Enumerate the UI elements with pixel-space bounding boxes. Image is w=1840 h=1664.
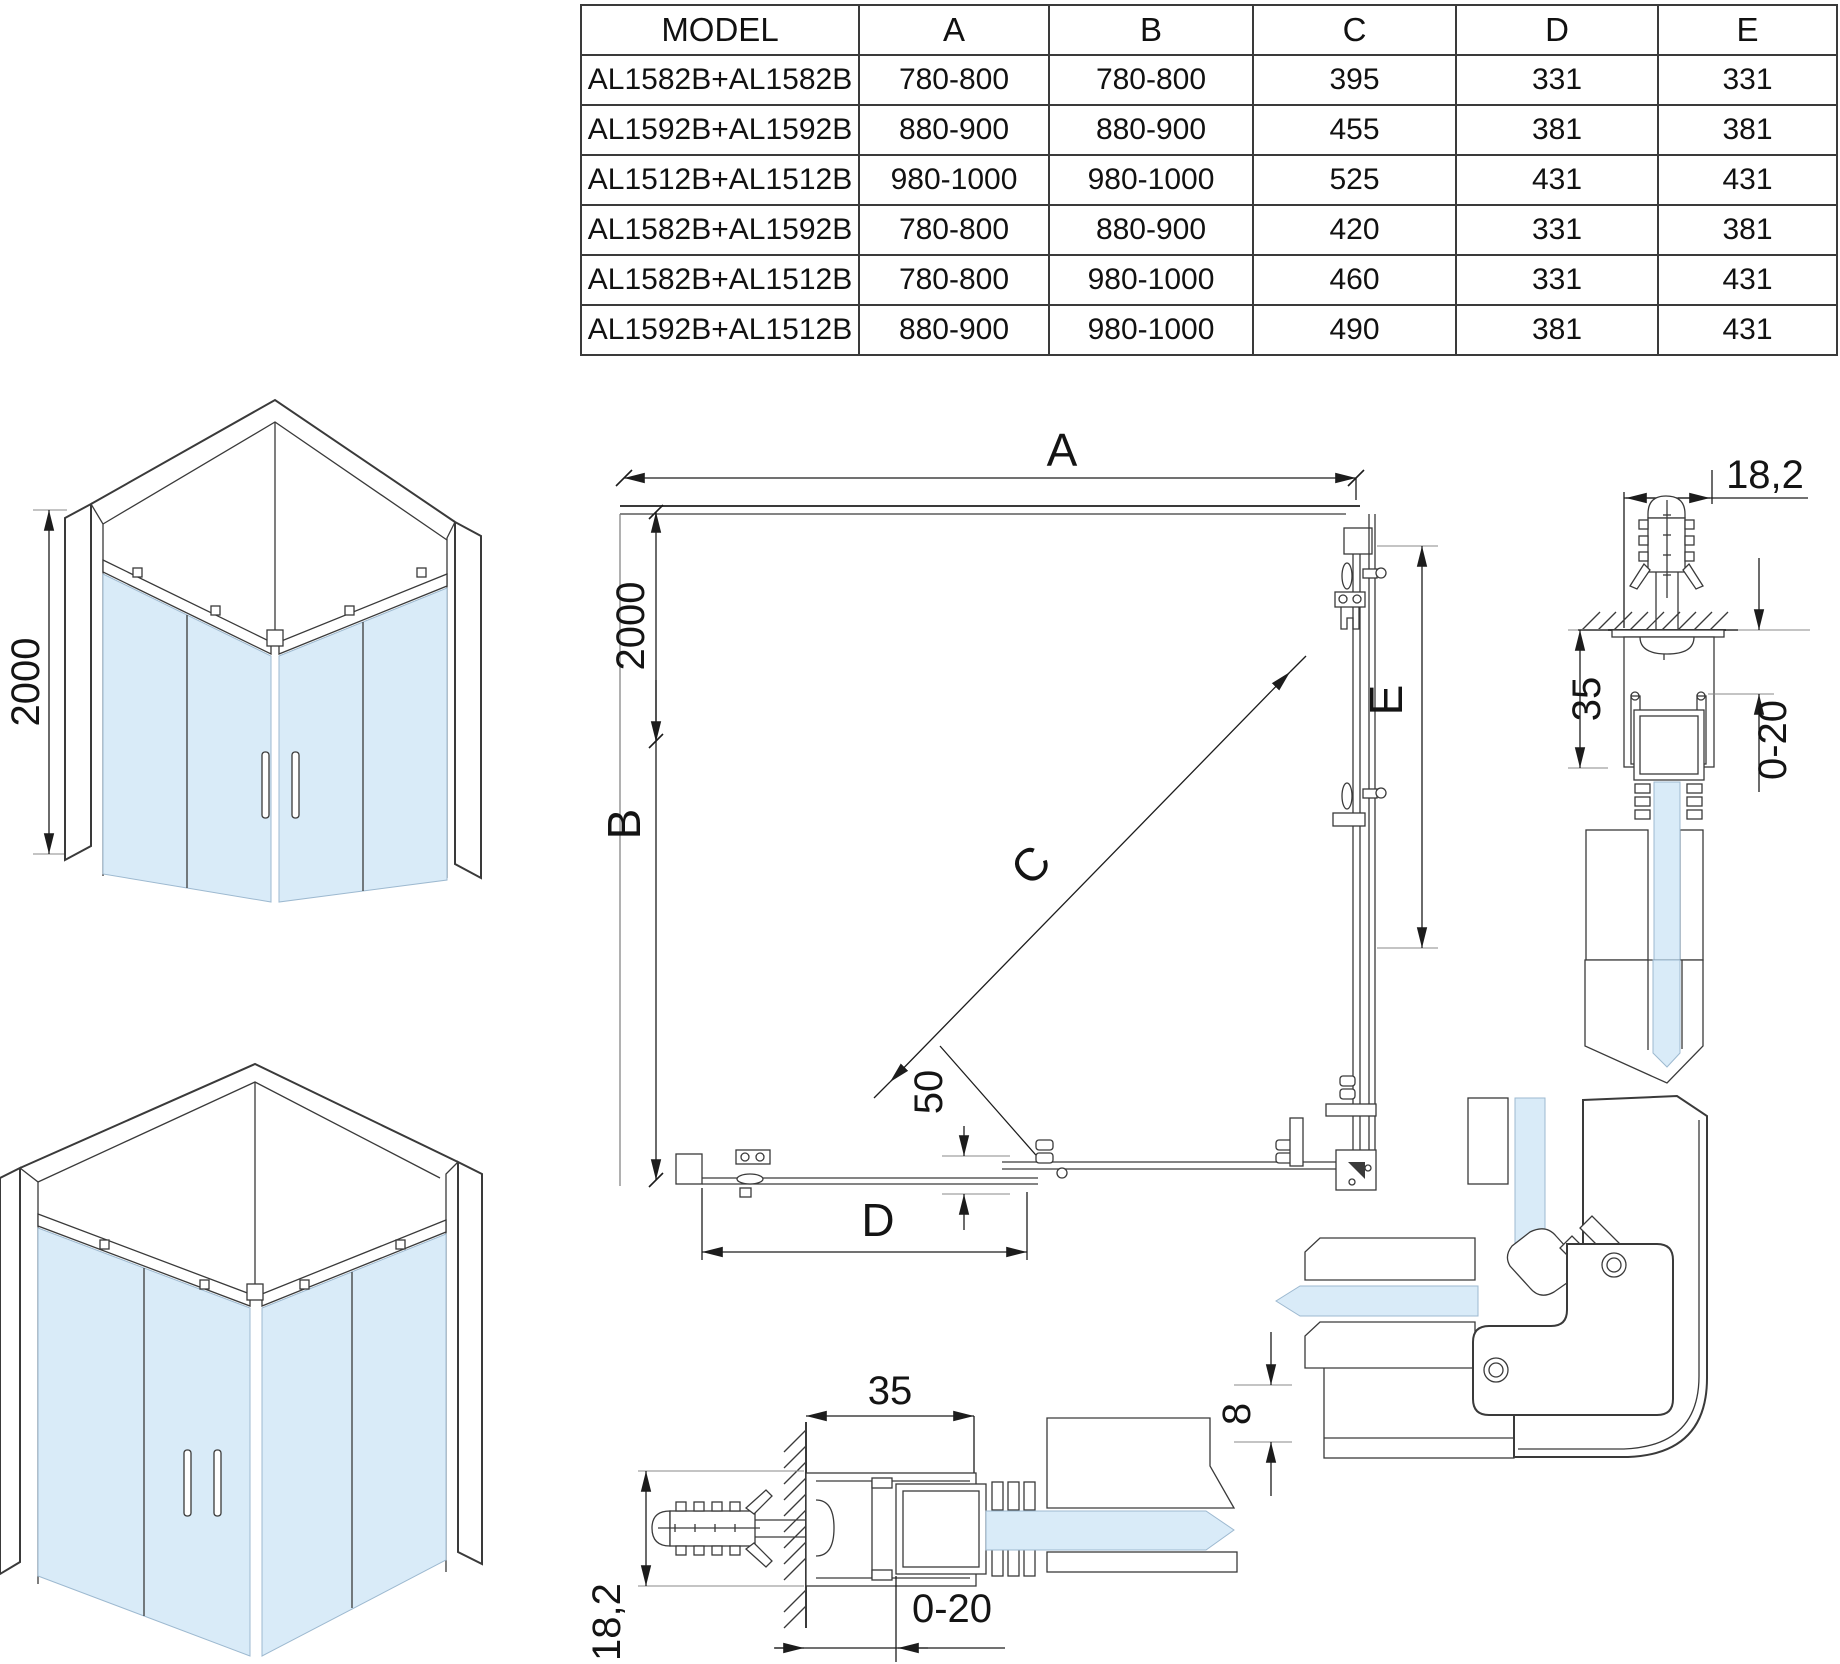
col-header-e: E [1658,5,1837,55]
dim-c-label: C [1000,835,1060,895]
col-header-model: MODEL [581,5,859,55]
dim-35-label: 35 [1565,677,1609,722]
inner-door-glass [1468,1098,1580,1295]
door-panel-edge [1586,830,1648,960]
dim-35: 35 [806,1369,974,1478]
dim-0-20-label: 0-20 [1751,700,1795,780]
cell-model: AL1582B+AL1512B [581,255,859,305]
table-header-row: MODEL A B C D E [581,5,1837,55]
col-header-c: C [1253,5,1456,55]
glass-section [1654,782,1680,960]
plug-width-label: 18,2 [585,1583,629,1661]
dim-0-20-label: 0-20 [912,1587,992,1631]
dim-50: 50 [907,1070,1010,1230]
table-row: AL1592B+AL1512B 880-900 980-1000 490 381… [581,305,1837,355]
dim-a-label: A [1047,424,1078,476]
wall-hatch [1578,612,1738,630]
dim-e-label: E [1360,685,1412,716]
dim-35-label: 35 [868,1369,913,1413]
cell-model: AL1582B+AL1592B [581,205,859,255]
dim-b-2000: 2000 B [598,505,663,1187]
dim-a: A [616,424,1364,500]
dim-d: D [702,1188,1027,1260]
dim-d-label: D [861,1194,894,1246]
wall-top [620,506,1360,514]
corner-connector-bracket [1473,1244,1673,1415]
col-header-a: A [859,5,1049,55]
table-row: AL1582B+AL1512B 780-800 980-1000 460 331… [581,255,1837,305]
cell-model: AL1582B+AL1582B [581,55,859,105]
dim-plug-width: 18,2 [585,1471,804,1661]
vertical-glass-from-top [1585,960,1703,1083]
col-header-b: B [1049,5,1253,55]
dim-35: 35 [1565,630,1609,768]
corner-cap [247,1284,263,1300]
dim-0-20: 0-20 [1708,558,1810,792]
corner-seal-detail: 8 [1230,950,1840,1664]
isometric-view-square-enclosure: 2000 [15,378,485,908]
dim-e: E [1360,546,1438,948]
technical-datasheet: MODEL A B C D E AL1582B+AL1582B 780-800 … [0,0,1840,1664]
dim-b-label: B [598,809,650,840]
cell-model: AL1512B+AL1512B [581,155,859,205]
height-label: 2000 [609,582,653,671]
wall-hatch [784,1422,806,1628]
height-label: 2000 [4,638,48,727]
table-row: AL1512B+AL1512B 980-1000 980-1000 525 43… [581,155,1837,205]
section-detail-top-profile: 18,2 [1560,400,1840,960]
corner-cap [267,630,283,646]
dim-50-label: 50 [907,1070,951,1115]
isometric-view-rectangular-enclosure [0,912,500,1664]
table-row: AL1592B+AL1592B 880-900 880-900 455 381 … [581,105,1837,155]
plug-width-label: 18,2 [1726,453,1804,497]
horizontal-door-glass [1276,1238,1478,1368]
height-dimension: 2000 [4,510,67,854]
cell-model: AL1592B+AL1512B [581,305,859,355]
model-dimension-table: MODEL A B C D E AL1582B+AL1582B 780-800 … [580,4,1838,356]
section-detail-wall-profile-horizontal: 35 18,2 [560,1380,1240,1664]
col-header-d: D [1456,5,1658,55]
wall-plug-drawing [1630,496,1703,630]
table-row: AL1582B+AL1592B 780-800 880-900 420 331 … [581,205,1837,255]
door-panel-edge [1680,830,1703,960]
table-row: AL1582B+AL1582B 780-800 780-800 395 331 … [581,55,1837,105]
wall-plug-drawing [652,1490,806,1567]
cell-model: AL1592B+AL1592B [581,105,859,155]
dim-0-20: 0-20 [774,1576,1005,1662]
